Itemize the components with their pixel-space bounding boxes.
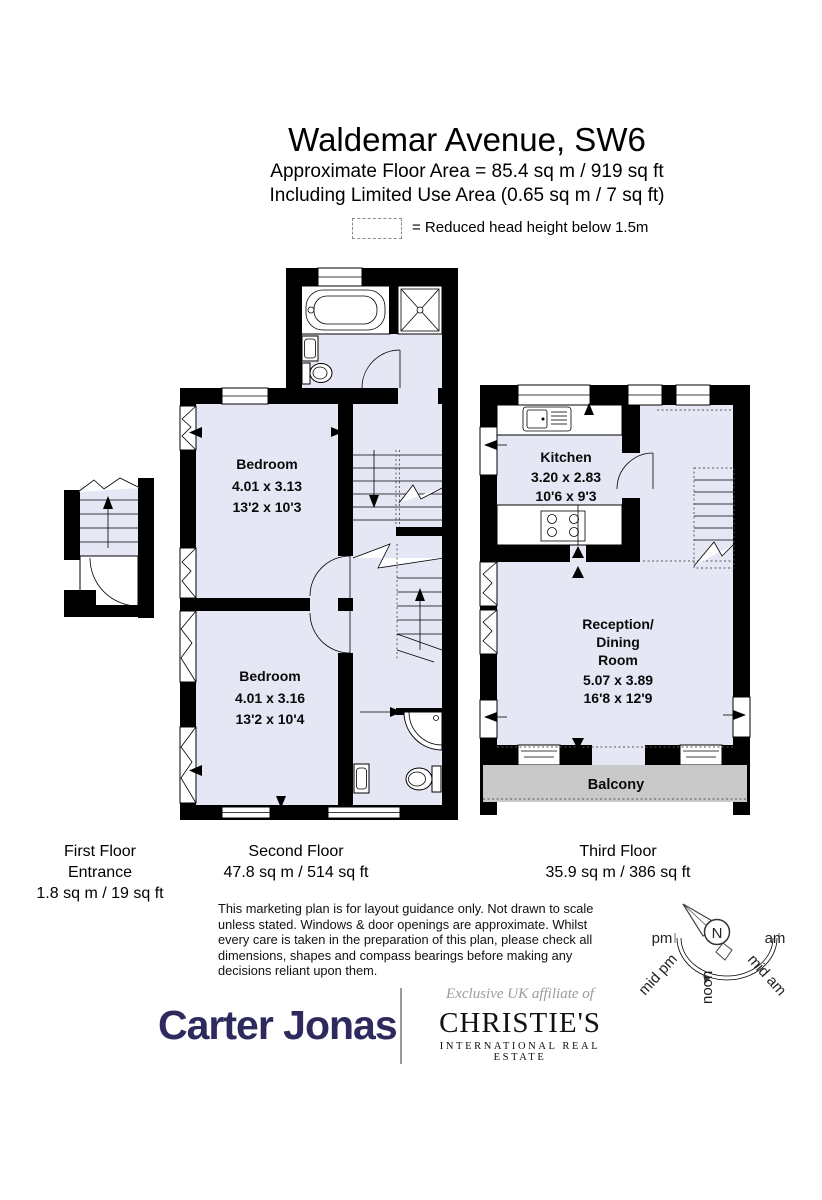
bedroom1-imperial: 13'2 x 10'3 bbox=[233, 499, 302, 515]
reception-label-1: Reception/ bbox=[582, 616, 654, 632]
first-floor-caption: First Floor Entrance 1.8 sq m / 19 sq ft bbox=[18, 841, 182, 904]
logo-divider bbox=[400, 988, 402, 1064]
reception-window-a bbox=[480, 562, 497, 606]
bedroom1-window-a bbox=[180, 406, 196, 450]
compass-mid-pm: mid pm bbox=[635, 951, 681, 999]
second-floor-caption: Second Floor 47.8 sq m / 514 sq ft bbox=[196, 841, 396, 883]
third-floor-caption: Third Floor 35.9 sq m / 386 sq ft bbox=[518, 841, 718, 883]
second-floor-plan: Bedroom 4.01 x 3.13 13'2 x 10'3 Bedroom … bbox=[180, 268, 458, 820]
bedroom1-label: Bedroom bbox=[236, 456, 297, 472]
kitchen-imperial: 10'6 x 9'3 bbox=[535, 488, 596, 504]
christies-logo: CHRISTIE'S bbox=[422, 1008, 618, 1038]
toilet-bowl bbox=[406, 768, 432, 790]
balcony-label: Balcony bbox=[588, 777, 644, 793]
floorplan-drawing: Bedroom 4.01 x 3.13 13'2 x 10'3 Bedroom … bbox=[0, 0, 822, 830]
kitchen-side-window bbox=[480, 427, 497, 475]
reception-window-b bbox=[480, 610, 497, 654]
compass-pm: pm bbox=[652, 930, 673, 947]
bath-tap-icon bbox=[308, 307, 314, 313]
reception-metric: 5.07 x 3.89 bbox=[583, 672, 653, 688]
bedroom1-metric: 4.01 x 3.13 bbox=[232, 478, 302, 494]
reception-label-2: Dining bbox=[596, 634, 640, 650]
floorplan-page: Waldemar Avenue, SW6 Approximate Floor A… bbox=[0, 0, 822, 1200]
compass: N pm am mid pm noon mid am bbox=[635, 892, 795, 1012]
affiliate-line: Exclusive UK affiliate of bbox=[422, 986, 618, 1003]
bedroom2-window-b bbox=[180, 727, 196, 803]
balcony-door-b bbox=[680, 745, 722, 765]
reception-imperial: 16'8 x 12'9 bbox=[584, 690, 653, 706]
first-floor-plan bbox=[64, 478, 154, 618]
christies-tagline: INTERNATIONAL REAL ESTATE bbox=[422, 1041, 618, 1063]
compass-needle-tail bbox=[716, 943, 732, 960]
compass-am: am bbox=[765, 930, 786, 947]
disclaimer-text: This marketing plan is for layout guidan… bbox=[218, 901, 620, 979]
bedroom2-imperial: 13'2 x 10'4 bbox=[236, 711, 305, 727]
reception-label-3: Room bbox=[598, 652, 638, 668]
bedroom2-label: Bedroom bbox=[239, 668, 300, 684]
third-floor-plan: Kitchen 3.20 x 2.83 10'6 x 9'3 Reception… bbox=[480, 385, 750, 815]
kitchen-label: Kitchen bbox=[540, 449, 591, 465]
compass-noon: noon bbox=[699, 971, 716, 1004]
bedroom2-window-a bbox=[180, 611, 196, 682]
balcony-door-a bbox=[518, 745, 560, 765]
christies-logo-block: Exclusive UK affiliate of CHRISTIE'S INT… bbox=[422, 986, 618, 1063]
shower-drain-icon bbox=[417, 307, 423, 313]
compass-north: N bbox=[712, 925, 723, 942]
carter-jonas-logo: Carter Jonas bbox=[158, 1002, 388, 1049]
kitchen-metric: 3.20 x 2.83 bbox=[531, 469, 601, 485]
toilet-cistern bbox=[302, 363, 310, 384]
toilet-cistern bbox=[432, 766, 441, 792]
bedroom2-metric: 4.01 x 3.16 bbox=[235, 690, 305, 706]
